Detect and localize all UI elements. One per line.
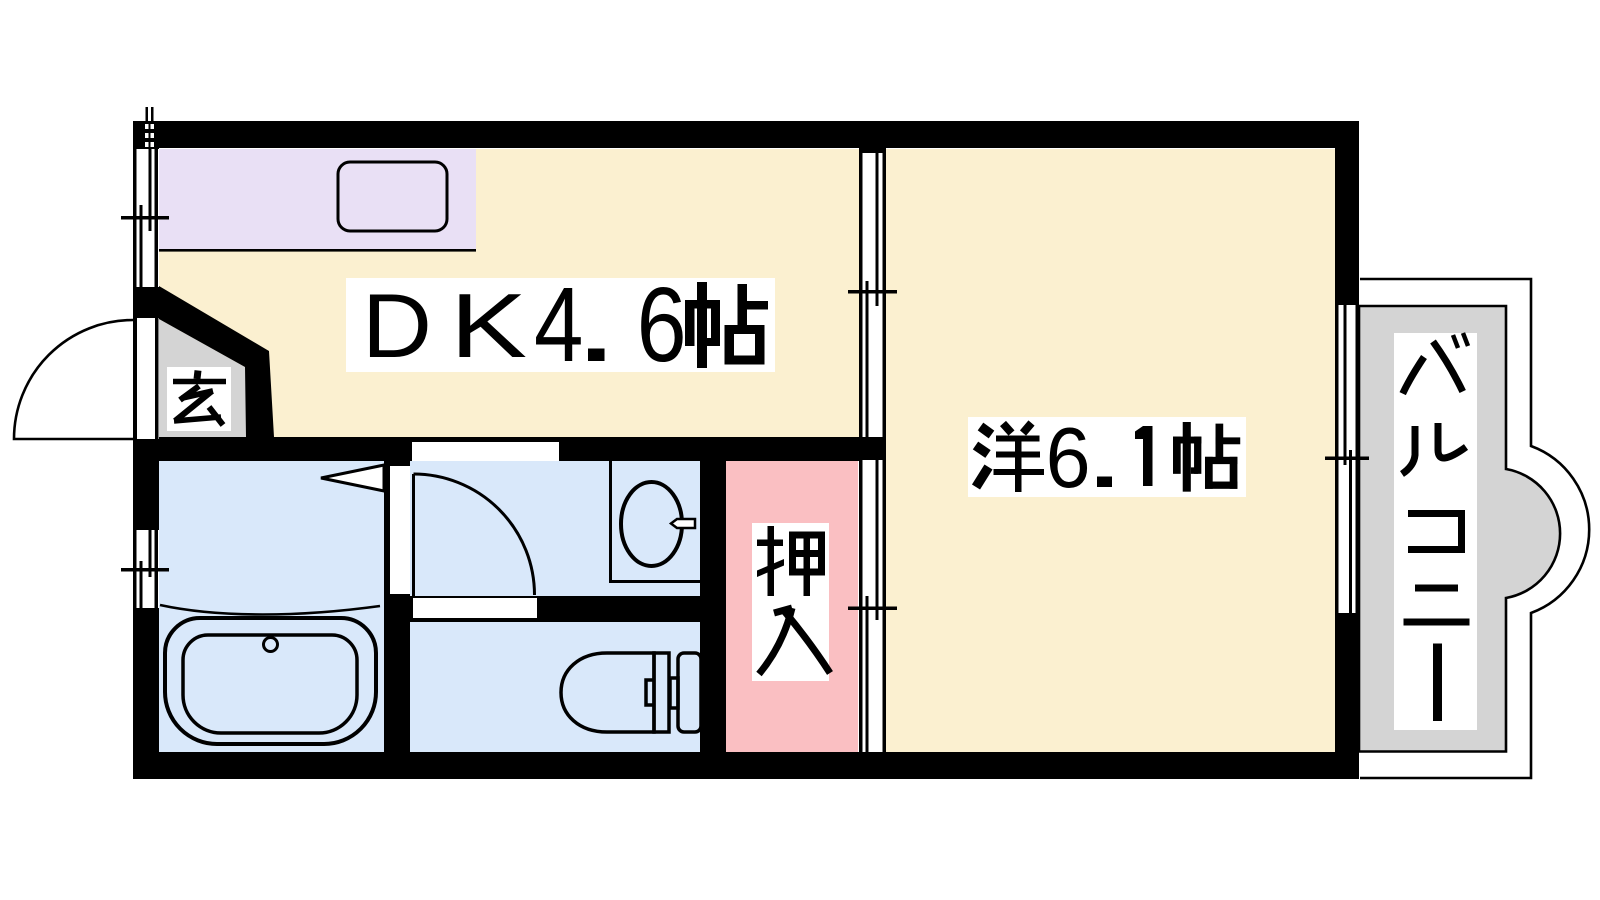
- svg-text:K: K: [450, 276, 527, 377]
- svg-text:6: 6: [637, 266, 687, 384]
- svg-text:D: D: [362, 276, 432, 377]
- svg-text:6: 6: [1046, 411, 1091, 506]
- svg-text:4: 4: [534, 266, 583, 384]
